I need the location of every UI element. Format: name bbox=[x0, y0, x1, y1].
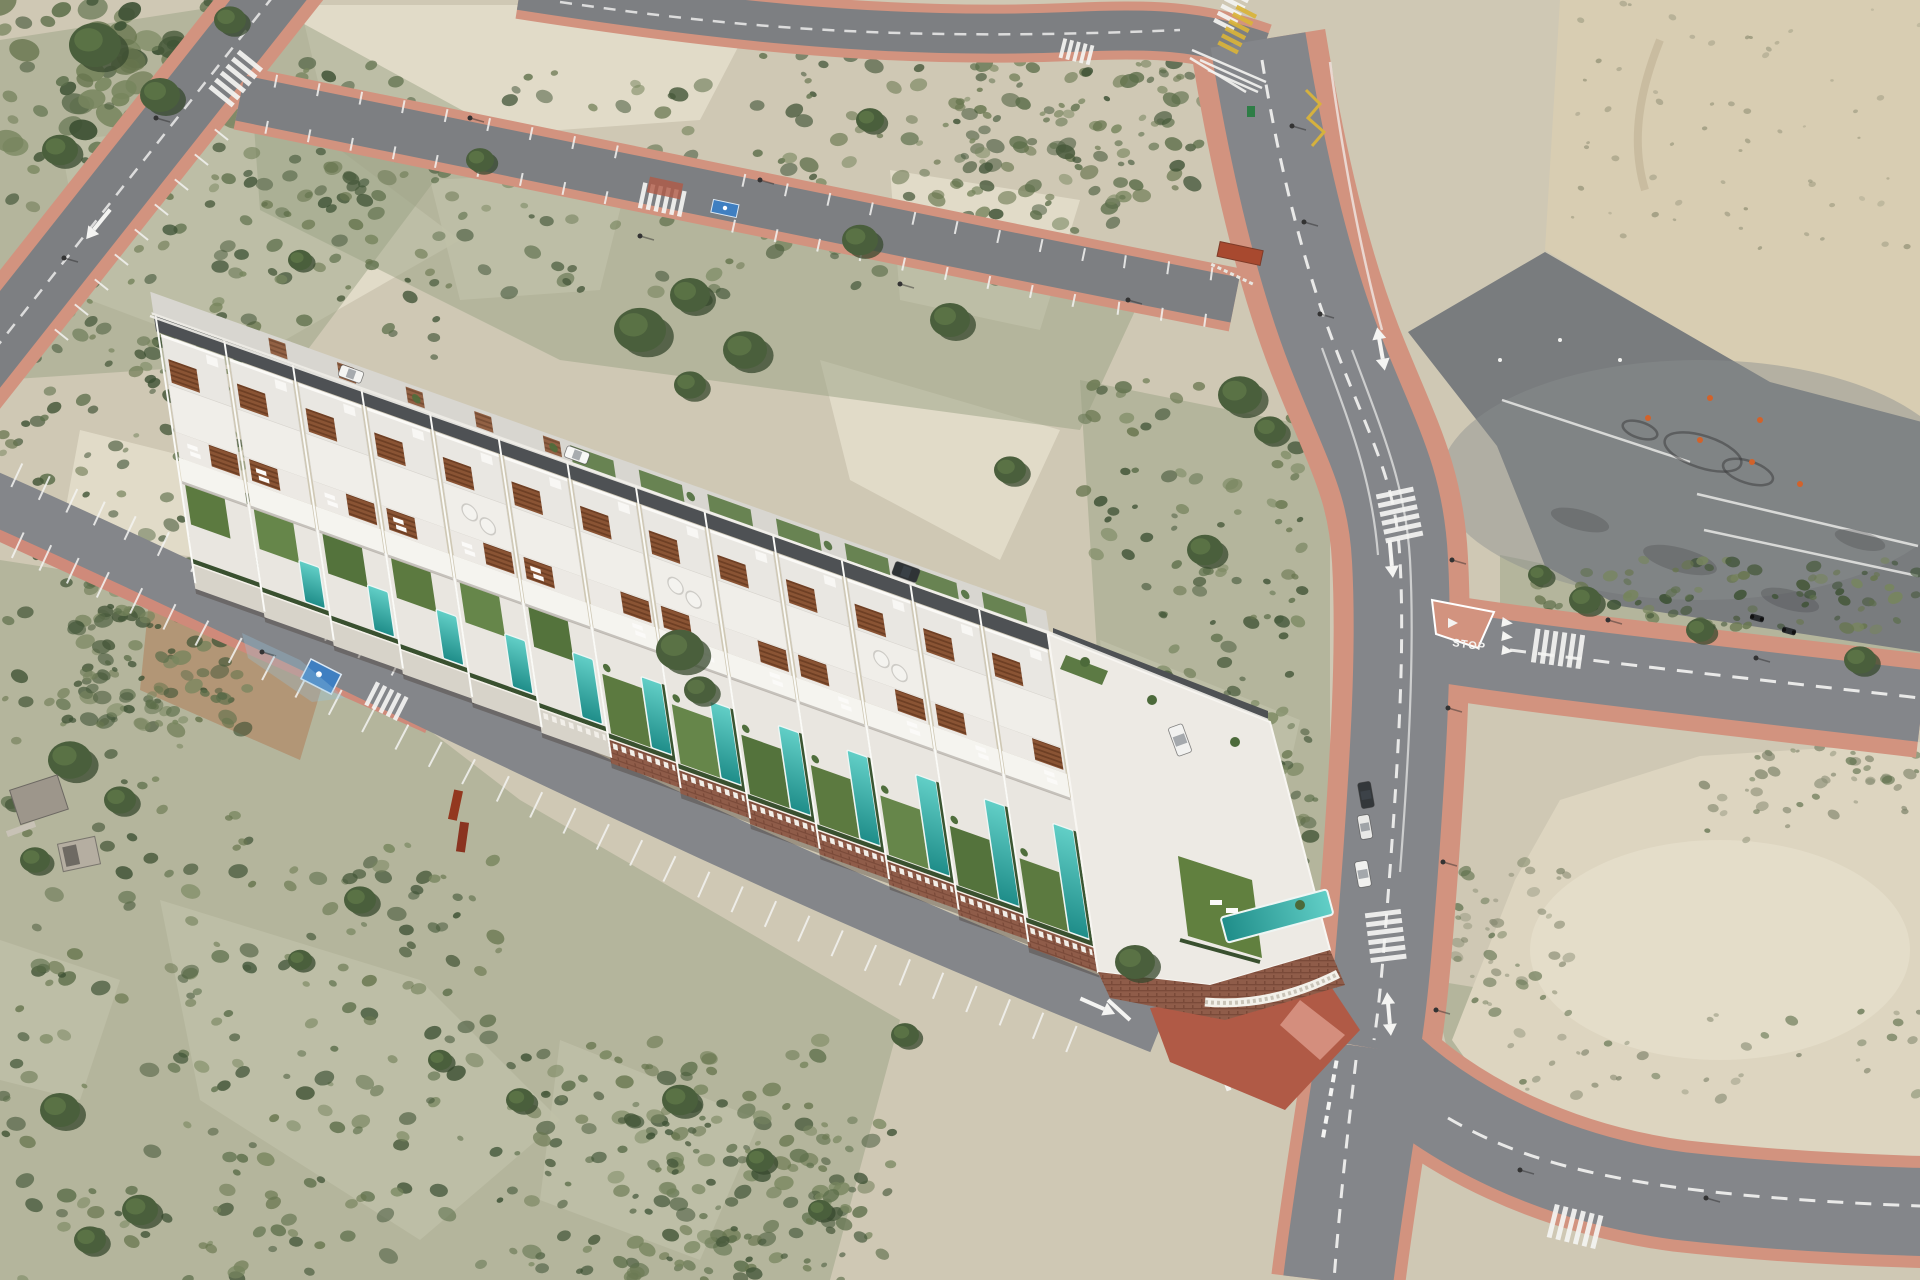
lot-post bbox=[1618, 358, 1622, 362]
traffic-cone bbox=[1757, 417, 1763, 423]
detail bbox=[1434, 1008, 1439, 1013]
detail bbox=[62, 256, 67, 261]
bush bbox=[698, 1154, 715, 1167]
detail bbox=[144, 82, 166, 100]
sand-patch bbox=[1530, 840, 1910, 1060]
detail bbox=[52, 746, 76, 766]
bush bbox=[1470, 975, 1475, 978]
detail bbox=[107, 790, 125, 804]
detail bbox=[44, 1097, 66, 1115]
aerial-photo: STOP bbox=[0, 0, 1920, 1280]
detail bbox=[469, 151, 484, 164]
detail bbox=[1518, 1168, 1523, 1173]
detail bbox=[661, 634, 687, 656]
bush bbox=[725, 258, 733, 264]
detail bbox=[468, 116, 473, 121]
sun-lounger bbox=[1210, 900, 1222, 905]
bush bbox=[1607, 600, 1621, 610]
detail bbox=[347, 890, 365, 904]
detail bbox=[1441, 860, 1446, 865]
detail bbox=[687, 680, 705, 694]
bush bbox=[1217, 522, 1225, 528]
detail bbox=[749, 1151, 764, 1164]
detail bbox=[727, 336, 751, 356]
detail bbox=[430, 1052, 443, 1063]
detail bbox=[23, 850, 40, 864]
detail bbox=[1572, 590, 1590, 604]
detail bbox=[846, 228, 866, 244]
detail bbox=[1360, 790, 1371, 800]
detail bbox=[1357, 869, 1368, 879]
traffic-cone bbox=[1797, 481, 1803, 487]
detail bbox=[1754, 656, 1759, 661]
scene-canvas: STOP bbox=[0, 0, 1920, 1280]
detail bbox=[758, 178, 763, 183]
bush bbox=[1312, 797, 1318, 801]
bush bbox=[40, 1034, 53, 1044]
detail bbox=[74, 28, 103, 51]
traffic-cone bbox=[1697, 437, 1703, 443]
detail bbox=[619, 313, 648, 336]
detail bbox=[1530, 567, 1543, 578]
detail bbox=[217, 10, 235, 24]
detail bbox=[1450, 558, 1455, 563]
detail bbox=[77, 1230, 95, 1244]
traffic-cone bbox=[1749, 459, 1755, 465]
detail bbox=[859, 111, 874, 124]
detail bbox=[1126, 298, 1131, 303]
bush bbox=[885, 1160, 896, 1168]
detail bbox=[674, 282, 696, 300]
palm bbox=[1295, 900, 1305, 910]
detail bbox=[1446, 706, 1451, 711]
detail bbox=[677, 375, 695, 389]
detail bbox=[810, 1202, 823, 1213]
bush bbox=[93, 691, 112, 704]
detail bbox=[1302, 220, 1307, 225]
bush bbox=[704, 1123, 711, 1128]
palm bbox=[1230, 737, 1240, 747]
bush bbox=[725, 1197, 738, 1207]
detail bbox=[1606, 618, 1611, 623]
detail bbox=[1689, 621, 1704, 634]
detail bbox=[1847, 650, 1865, 664]
bush bbox=[1865, 778, 1875, 785]
detail bbox=[1119, 949, 1141, 967]
bush bbox=[481, 205, 491, 212]
sun-lounger bbox=[1226, 908, 1238, 913]
detail bbox=[638, 234, 643, 239]
traffic-cone bbox=[1645, 415, 1651, 421]
detail bbox=[260, 650, 265, 655]
detail bbox=[1704, 1196, 1709, 1201]
detail bbox=[1191, 538, 1211, 554]
detail bbox=[1360, 822, 1370, 831]
detail bbox=[894, 1026, 909, 1039]
detail bbox=[1290, 124, 1295, 129]
waste-bin bbox=[1247, 106, 1255, 117]
palm bbox=[1080, 657, 1090, 667]
detail bbox=[290, 252, 303, 263]
detail bbox=[898, 282, 903, 287]
detail bbox=[126, 1198, 146, 1214]
lot-post bbox=[1558, 338, 1562, 342]
detail bbox=[290, 952, 303, 963]
detail bbox=[154, 116, 159, 121]
bush bbox=[901, 132, 919, 145]
detail bbox=[997, 460, 1015, 474]
detail bbox=[934, 307, 956, 325]
bush bbox=[239, 271, 246, 276]
detail bbox=[509, 1091, 524, 1104]
bush bbox=[338, 964, 349, 972]
detail bbox=[1318, 312, 1323, 317]
bush bbox=[541, 1091, 551, 1098]
detail bbox=[666, 1088, 686, 1104]
detail bbox=[1257, 420, 1275, 434]
detail bbox=[46, 138, 66, 154]
bush bbox=[445, 191, 459, 201]
traffic-cone bbox=[1707, 395, 1713, 401]
palm bbox=[1147, 695, 1157, 705]
detail bbox=[1222, 381, 1246, 401]
lot-post bbox=[1498, 358, 1502, 362]
